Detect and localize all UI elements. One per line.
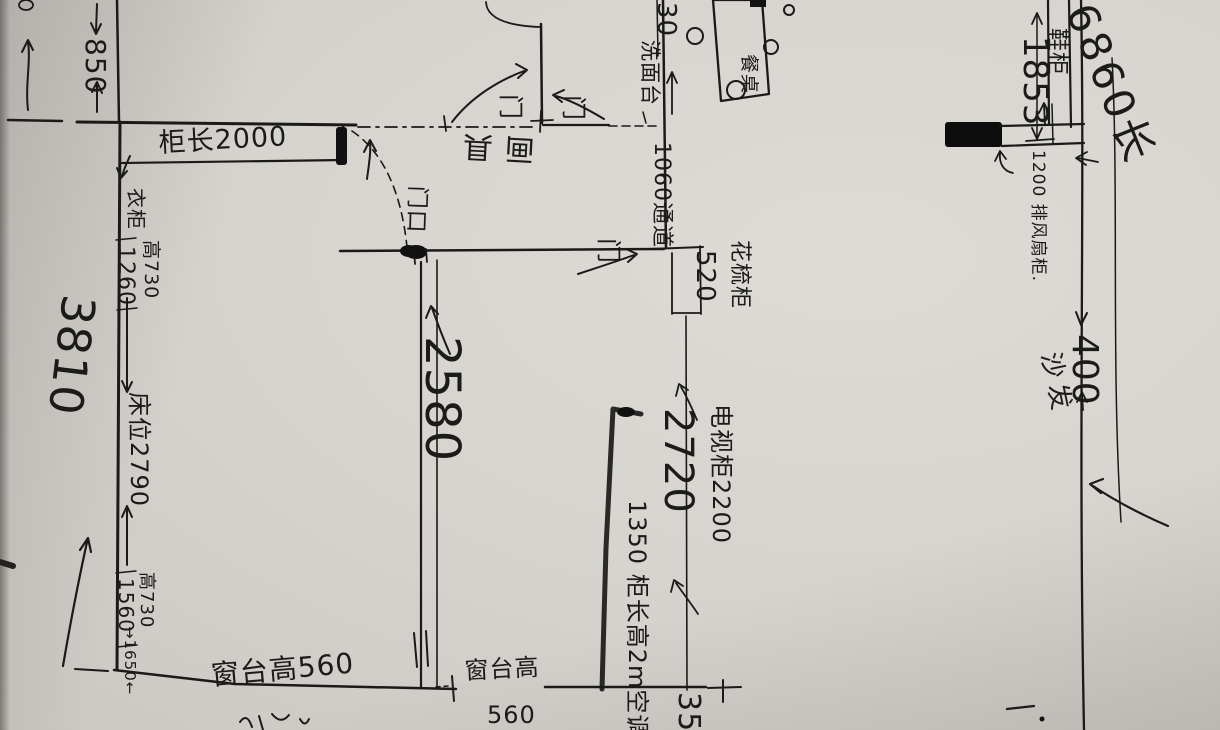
bath-wall [541,24,542,123]
window-dash [436,686,448,687]
dash-mark [643,112,646,123]
arrow-2720 [671,580,698,614]
floor-plan-photo: 850 柜长2000 衣柜 高730 1260 3810 床位2790 高730… [0,0,1220,730]
door-swing-arc [352,131,407,247]
window-sill-mid-value: 560 [487,703,536,727]
dim-3810-label: 3810 [42,292,102,418]
wash-basin-label: 洗面台 [639,40,660,106]
arrow-elbow [995,151,1013,173]
cabinet-length-label: 柜长2000 [158,123,288,157]
ink-blob [336,127,347,165]
tv-cabinet-label: 电视柜2200 [709,404,733,544]
dim-1650-label: →1650← [122,626,137,695]
ink-dot [1040,717,1045,722]
arrow-down [91,4,101,34]
edge-mark [0,562,13,566]
arrow-up [22,40,33,110]
door-label: 门 [596,238,621,264]
arrow-left [1076,152,1098,165]
height-730-bottom-label: 高730 [137,572,155,628]
wall-tick [75,669,108,671]
upper-left-wall [117,0,119,122]
fan-cabinet-label: 1200 排风扇柜. [1029,150,1046,282]
partial-number-label: 30 [653,2,679,37]
dining-table-label: 餐桌 [739,54,758,94]
wall-tick [8,120,62,121]
closet-column-label: 1350 柜长高2m空调 [625,500,649,730]
dresser-520-label: 520 [692,250,718,303]
dim-350-label: 350 [673,692,703,730]
stool [687,28,703,44]
dim-1560-label: 1560 [116,578,136,633]
dresser-label: 花梳柜 [728,240,750,309]
ink-blob [400,245,418,257]
door-arc-top [486,2,540,27]
door-opening-label: 门口 [403,185,428,234]
arrow-diagonal [63,538,91,666]
door-label: 门 [561,95,586,121]
ink-blob [750,0,766,7]
bottom-tick [1007,706,1034,709]
passage-1060-label: 1060通道 [650,142,672,248]
arrow-up [667,72,677,114]
wall-end-tick [708,680,741,702]
arrow-up [122,506,132,565]
window-tick [452,676,454,701]
door-label: 门 [498,94,523,120]
arrow-door-opening [364,140,376,179]
shoe-cabinet-label: 鞋柜 [1045,28,1068,76]
wall-blob [945,122,1002,147]
dim-2580-label: 2580 [418,336,466,462]
clipped-writing [240,714,309,730]
wardrobe-label: 衣柜 [126,188,146,230]
dim-1260-label: 1260 [114,246,136,306]
dim-2720-label: 2720 [658,408,698,514]
flipped-text-label: 画具 [446,129,539,164]
clipped-mark [19,0,33,10]
dim-850-label: 850 [81,38,109,94]
window-sill-mid-label: 窗台高 [464,655,540,683]
stool [784,5,794,15]
arrow-long-left [1090,479,1168,526]
height-730-top-label: 高730 [141,240,160,299]
ink-blob [617,407,635,417]
bed-position-label: 床位2790 [127,392,151,507]
arrow-down [122,298,132,392]
dim-end-tick [1026,139,1054,141]
